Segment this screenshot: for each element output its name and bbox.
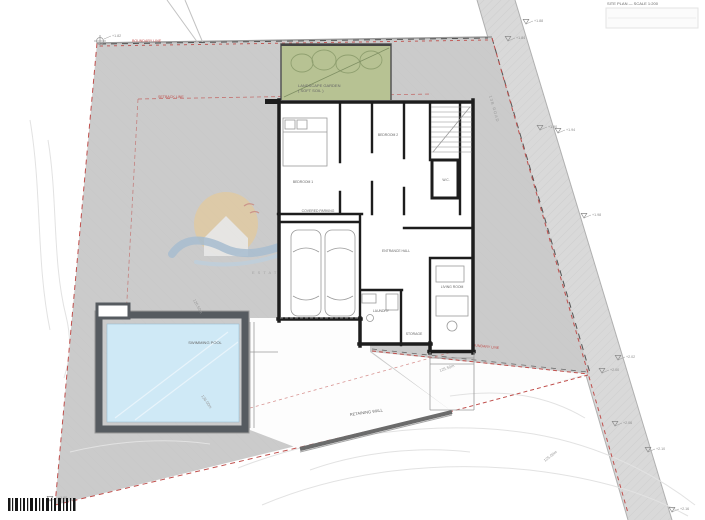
room-label: LIVING ROOM <box>441 285 464 289</box>
boundary-top-label: BOUNDARY LINE <box>132 39 162 43</box>
room-label: LAUNDRY <box>373 309 390 313</box>
spot-level-value: +1.82 <box>112 34 121 38</box>
spot-level-value: +2.00 <box>610 368 619 372</box>
setback-label: SETBACK LINE <box>158 95 184 99</box>
spot-level-value: +2.02 <box>626 355 635 359</box>
room-label: W.C. <box>442 178 449 182</box>
garden-strip: LANDSCAPE GARDEN ( SOFT SOIL ) <box>281 44 391 101</box>
room-label: BEDROOM 1 <box>293 180 313 184</box>
garden-label-2: ( SOFT SOIL ) <box>298 88 324 93</box>
wall-stub <box>265 99 279 104</box>
corner-note-text: SITE PLAN — SCALE 1:200 <box>607 1 659 6</box>
room-label: COVERED PARKING <box>302 209 335 213</box>
spot-level-value: +1.98 <box>592 213 601 217</box>
pool-step <box>97 304 129 318</box>
room-label: BEDROOM 2 <box>378 133 398 137</box>
spot-level-value: +1.94 <box>566 128 575 132</box>
spot-level-value: +2.06 <box>623 421 632 425</box>
room-label: ENTRANCE HALL <box>382 249 410 253</box>
spot-level-value: +1.84 <box>516 36 525 40</box>
floor-plan-canvas: ESTATES BOUNDARY LINE SETBACK LINE BOUND… <box>0 0 705 520</box>
site-plan-drawing: ESTATES BOUNDARY LINE SETBACK LINE BOUND… <box>0 0 705 520</box>
spot-level-value: +2.10 <box>656 447 665 451</box>
spot-level-value: +2.16 <box>680 507 689 511</box>
spot-level-value: +1.88 <box>534 19 543 23</box>
pool-label: SWIMMING POOL <box>188 340 222 345</box>
room-label: STORAGE <box>406 332 423 336</box>
